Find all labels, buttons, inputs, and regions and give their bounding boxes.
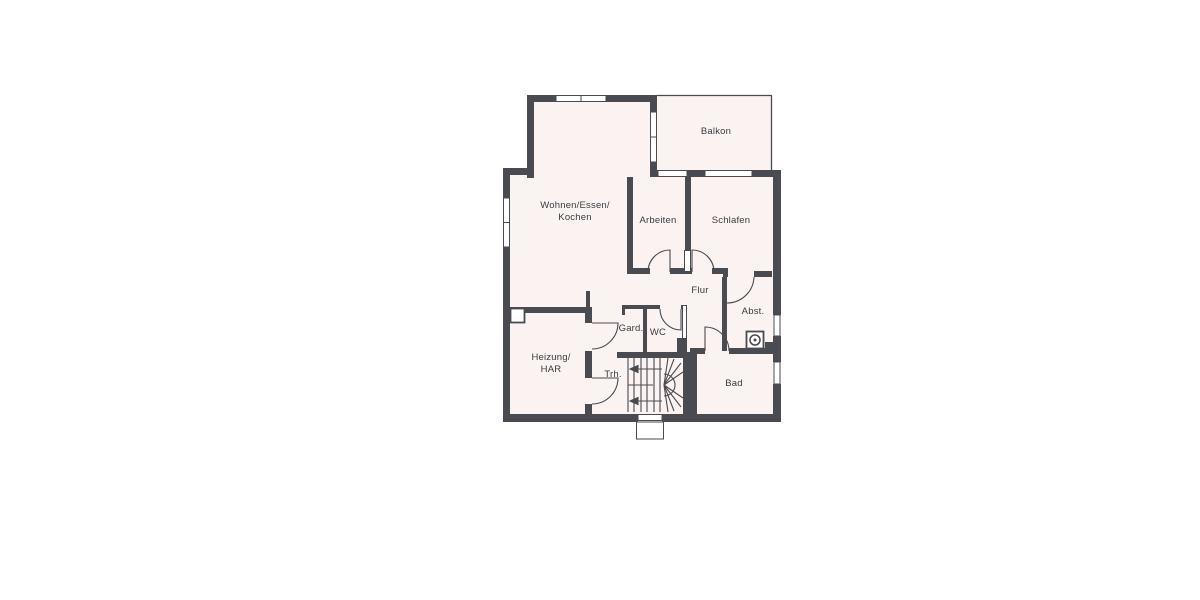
room-label-trh: Trh. — [604, 369, 621, 380]
window-abst — [774, 315, 780, 336]
room-label-heizung-2: HAR — [541, 364, 562, 375]
chimney-icon — [511, 309, 525, 323]
window-balcony-door — [651, 112, 657, 162]
window-schlafen — [705, 171, 752, 177]
entrance-threshold — [638, 415, 662, 421]
window-arbeiten — [658, 171, 687, 177]
room-label-arbeiten: Arbeiten — [640, 215, 677, 226]
window-left-wohnen — [504, 198, 510, 247]
floorplan: Balkon Wohnen/Essen/ Kochen Arbeiten Sch… — [0, 0, 1200, 600]
room-label-heizung-1: Heizung/ — [531, 352, 570, 363]
entrance-step — [637, 422, 664, 439]
room-label-wohnen-2: Kochen — [558, 212, 591, 223]
room-label-balkon: Balkon — [701, 126, 731, 137]
window-top-wohnen — [556, 96, 606, 102]
room-label-wc: WC — [650, 327, 666, 338]
room-label-wohnen-1: Wohnen/Essen/ — [540, 200, 610, 211]
entrance — [637, 415, 664, 440]
window-bad — [774, 362, 780, 384]
room-label-schlafen: Schlafen — [712, 215, 751, 226]
room-label-gard: Gard. — [619, 323, 644, 334]
room-label-flur: Flur — [691, 285, 708, 296]
room-label-bad: Bad — [725, 378, 743, 389]
washing-machine-icon — [747, 332, 764, 349]
room-label-abst: Abst. — [742, 306, 765, 317]
room-area-wohnen-upper — [534, 102, 650, 175]
floorplan-page: Balkon Wohnen/Essen/ Kochen Arbeiten Sch… — [0, 0, 1200, 600]
